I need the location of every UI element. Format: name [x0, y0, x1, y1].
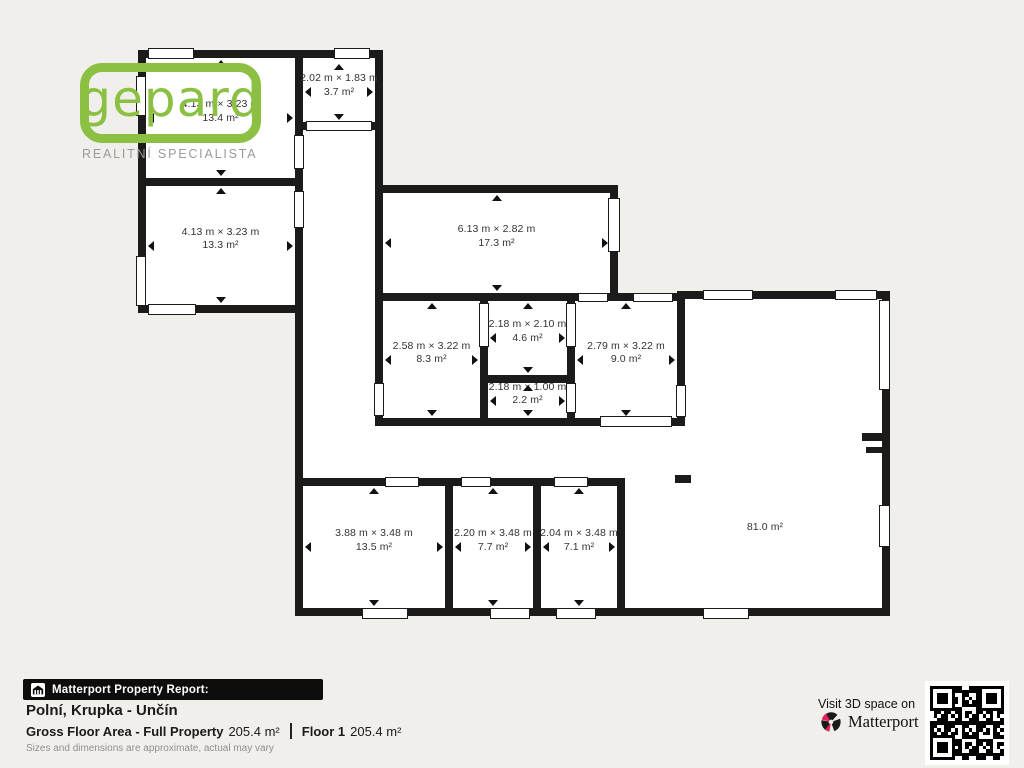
measure-arrow-icon	[523, 410, 533, 416]
measure-arrow-icon	[367, 87, 373, 97]
measure-arrow-icon	[455, 542, 461, 552]
wall	[445, 478, 453, 616]
room-17-3: 6.13 m × 2.82 m17.3 m²	[383, 193, 610, 293]
report-header-bar: Matterport Property Report:	[23, 679, 323, 700]
window	[835, 290, 877, 300]
wall-notch	[866, 447, 890, 453]
wall	[375, 50, 383, 426]
room-dims: 2.02 m × 1.83 m	[300, 72, 378, 86]
measure-arrow-icon	[669, 355, 675, 365]
measure-arrow-icon	[287, 241, 293, 251]
room-area: 9.0 m²	[587, 353, 665, 367]
measure-arrow-icon	[287, 113, 293, 123]
room-dims: 4.13 m × 3.23 m	[182, 226, 260, 240]
room-area: 13.5 m²	[335, 541, 413, 555]
room-8-3: 2.58 m × 3.22 m8.3 m²	[383, 301, 480, 418]
visit-3d-text: Visit 3D space on	[818, 697, 915, 711]
measure-arrow-icon	[488, 488, 498, 494]
measure-arrow-icon	[305, 542, 311, 552]
measure-arrow-icon	[490, 396, 496, 406]
measure-arrow-icon	[385, 238, 391, 248]
window	[362, 608, 408, 619]
measure-arrow-icon	[148, 241, 154, 251]
window	[334, 48, 370, 59]
measure-arrow-icon	[488, 600, 498, 606]
floor-area	[677, 291, 890, 616]
qr-code	[925, 681, 1009, 765]
window	[703, 290, 753, 300]
measure-arrow-icon	[559, 396, 565, 406]
measure-arrow-icon	[621, 303, 631, 309]
measure-arrow-icon	[369, 600, 379, 606]
measure-arrow-icon	[490, 333, 496, 343]
gfa-label: Gross Floor Area - Full Property	[26, 724, 223, 739]
room-13-3: 4.13 m × 3.23 m13.3 m²	[146, 186, 295, 305]
measure-arrow-icon	[525, 542, 531, 552]
window	[306, 121, 372, 131]
room-7-7: 2.20 m × 3.48 m7.7 m²	[453, 486, 533, 608]
room-area: 17.3 m²	[458, 237, 536, 251]
wall	[138, 178, 303, 186]
room-dims: 2.79 m × 3.22 m	[587, 340, 665, 354]
property-address: Polní, Krupka - Unčín	[26, 702, 178, 719]
measure-arrow-icon	[523, 385, 533, 391]
gepard-logo-text: gepard	[79, 70, 261, 136]
matterport-pinwheel-icon	[820, 711, 842, 733]
report-title: Matterport Property Report:	[52, 684, 209, 696]
disclaimer: Sizes and dimensions are approximate, ac…	[26, 743, 274, 754]
room-4-6: 2.18 m × 2.10 m4.6 m²	[488, 301, 567, 375]
page: 4.13 m × 3.23 m13.4 m² 2.02 m × 1.83 m3.…	[0, 0, 1024, 768]
measure-arrow-icon	[574, 600, 584, 606]
measure-arrow-icon	[523, 367, 533, 373]
gepard-logo-frame: gepard	[80, 63, 261, 143]
window	[556, 608, 596, 619]
floor-area-stats: Gross Floor Area - Full Property 205.4 m…	[26, 723, 401, 739]
window	[703, 608, 749, 619]
measure-arrow-icon	[369, 488, 379, 494]
room-9-0: 2.79 m × 3.22 m9.0 m²	[575, 301, 677, 418]
room-2-2: 2.18 m × 1.00 m2.2 m²	[488, 383, 567, 418]
room-area: 8.3 m²	[393, 353, 471, 367]
window	[148, 304, 196, 315]
room-area: 7.7 m²	[454, 541, 532, 555]
room-dims: 2.18 m × 2.10 m	[489, 318, 567, 332]
door	[294, 135, 304, 169]
floor-value: 205.4 m²	[350, 724, 401, 739]
measure-arrow-icon	[559, 333, 565, 343]
room-13-5: 3.88 m × 3.48 m13.5 m²	[303, 486, 445, 608]
gepard-logo-subtitle: REALITNÍ SPECIALISTA	[82, 147, 257, 161]
room-dims: 6.13 m × 2.82 m	[458, 223, 536, 237]
window	[879, 300, 890, 390]
measure-arrow-icon	[437, 542, 443, 552]
measure-arrow-icon	[621, 410, 631, 416]
measure-arrow-icon	[216, 170, 226, 176]
measure-arrow-icon	[492, 285, 502, 291]
measure-arrow-icon	[334, 64, 344, 70]
property-icon	[31, 683, 45, 697]
room-dims: 2.04 m × 3.48 m	[540, 527, 618, 541]
measure-arrow-icon	[385, 355, 391, 365]
measure-arrow-icon	[574, 488, 584, 494]
wall	[375, 185, 618, 193]
room-dims: 2.20 m × 3.48 m	[454, 527, 532, 541]
measure-arrow-icon	[427, 410, 437, 416]
measure-arrow-icon	[523, 303, 533, 309]
measure-arrow-icon	[472, 355, 478, 365]
measure-arrow-icon	[427, 303, 437, 309]
matterport-brand: Matterport '	[820, 711, 926, 733]
door	[294, 191, 304, 228]
wall-stub	[675, 475, 691, 483]
room-area: 7.1 m²	[540, 541, 618, 555]
stats-divider	[290, 723, 292, 739]
measure-arrow-icon	[602, 238, 608, 248]
door	[676, 385, 686, 417]
room-area: 81.0 m²	[747, 521, 783, 533]
window	[879, 505, 890, 547]
wall-notch	[862, 433, 890, 441]
room-area: 2.2 m²	[489, 394, 567, 408]
room-3-7: 2.02 m × 1.83 m3.7 m²	[303, 62, 375, 122]
floor-label: Floor 1	[302, 724, 345, 739]
gfa-value: 205.4 m²	[228, 724, 279, 739]
measure-arrow-icon	[305, 87, 311, 97]
matterport-wordmark: Matterport	[848, 712, 919, 732]
room-81-label: 81.0 m²	[700, 521, 830, 535]
room-area: 13.3 m²	[182, 239, 260, 253]
measure-arrow-icon	[577, 355, 583, 365]
window	[136, 256, 146, 306]
measure-arrow-icon	[492, 195, 502, 201]
room-dims: 3.88 m × 3.48 m	[335, 527, 413, 541]
measure-arrow-icon	[609, 542, 615, 552]
measure-arrow-icon	[334, 114, 344, 120]
window	[490, 608, 530, 619]
measure-arrow-icon	[216, 297, 226, 303]
wall	[617, 478, 625, 616]
measure-arrow-icon	[216, 188, 226, 194]
room-area: 4.6 m²	[489, 332, 567, 346]
room-7-1: 2.04 m × 3.48 m7.1 m²	[541, 486, 617, 608]
room-dims: 2.58 m × 3.22 m	[393, 340, 471, 354]
measure-arrow-icon	[543, 542, 549, 552]
